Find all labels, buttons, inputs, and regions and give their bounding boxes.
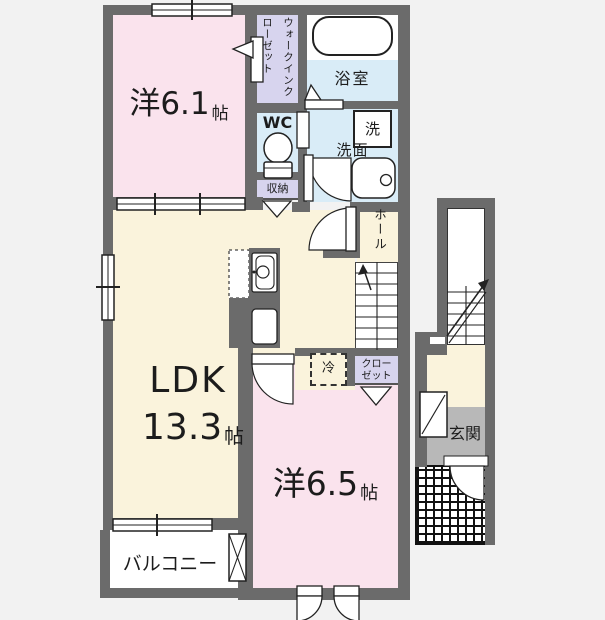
label-balcony: バルコニー (105, 552, 235, 578)
wall-washroom-ldk (292, 202, 310, 212)
wall-bedroom1-ldk (103, 197, 263, 210)
wall-annex-right (485, 198, 495, 545)
wall-stub-ldk (323, 250, 352, 258)
wall-wc-washroom (298, 103, 307, 203)
label-washroom: 洗面 (307, 141, 398, 161)
wall-bedroom2-bottom (238, 588, 410, 600)
label-ldk: LDK (113, 358, 263, 404)
bathtub-area (307, 13, 398, 60)
label-bedroom-1: 洋6.1帖 (113, 82, 245, 128)
label-hall: ホール (366, 208, 386, 264)
wall-balcony-bottom (100, 588, 253, 598)
wall-annex-left-lower (415, 355, 427, 467)
wall-wc-storage (245, 172, 307, 180)
wall-annex-left-upper (437, 198, 447, 338)
label-storage: 収納 (257, 181, 298, 198)
label-wc: WC (257, 111, 298, 135)
stairs-2f (355, 262, 398, 350)
label-ldk-size: 13.3帖 (103, 404, 283, 452)
label-washer: 洗 (354, 117, 391, 143)
label-walk-in-closet: ウォークインクローゼット (258, 17, 298, 103)
label-bedroom-2: 洋6.5帖 (253, 460, 398, 508)
wall-annex-jog (415, 332, 447, 355)
stairwell-1f (447, 208, 485, 345)
wall-bath-washroom (307, 101, 398, 109)
label-refrigerator: 冷 (310, 353, 347, 386)
wall-wic-bath (298, 5, 307, 103)
label-closet: クローゼット (355, 357, 398, 385)
entrance-porch-tile (415, 465, 495, 545)
wall-ldk-bottom (103, 518, 253, 530)
label-entrance: 玄関 (440, 423, 490, 445)
floor-plan: 洋6.1帖 ウォークインクローゼット 浴室 WC 洗 洗面 収納 ホール LDK… (0, 0, 605, 620)
wall-top (103, 5, 410, 15)
wall-right (398, 5, 410, 600)
label-bathroom: 浴室 (307, 68, 398, 90)
wall-fridge-closet (347, 348, 355, 386)
